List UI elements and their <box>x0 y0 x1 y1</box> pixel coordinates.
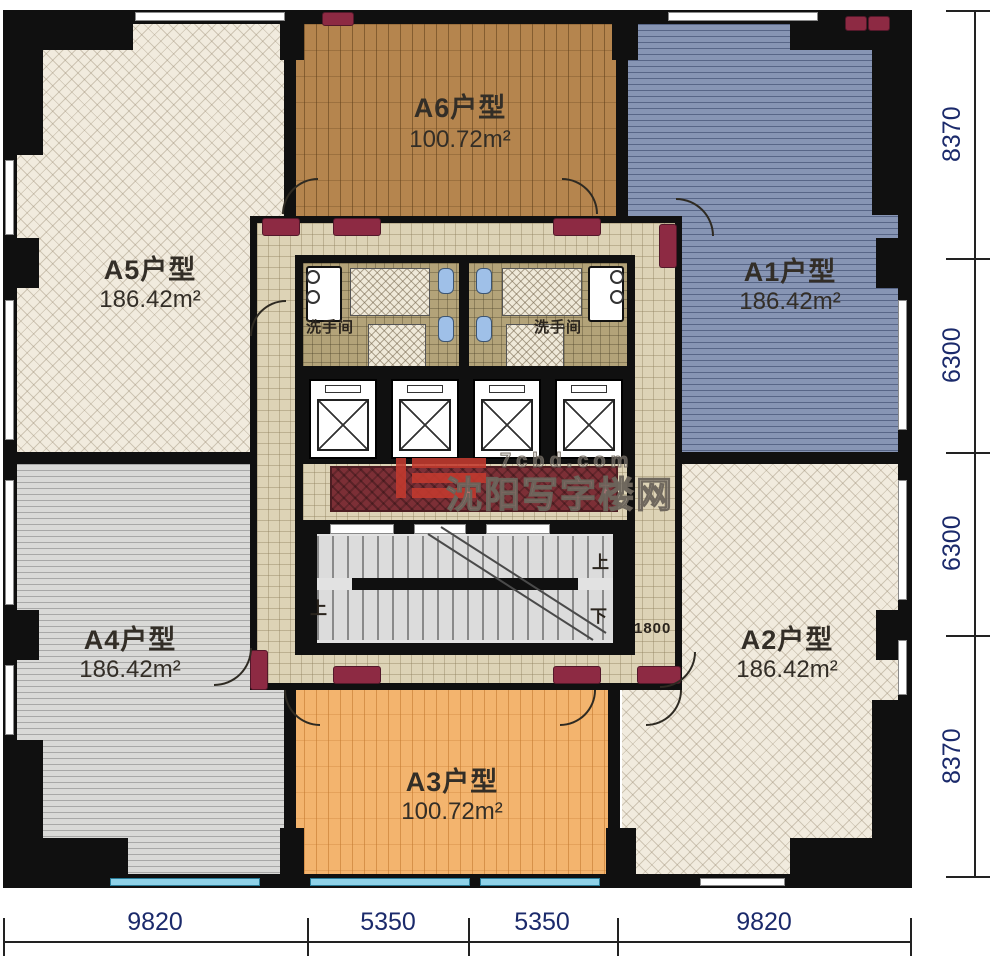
dim-right-1: 8370 <box>938 74 967 194</box>
toilet-icon <box>438 268 454 294</box>
stair-down-label: 下 <box>590 602 608 627</box>
dim-tick <box>910 918 912 956</box>
unit-a2-label: A2户型 <box>682 618 892 657</box>
sink-icon <box>306 290 320 304</box>
door-mat <box>659 224 677 268</box>
pier-top-right <box>612 10 638 60</box>
dim-line-bottom <box>3 941 912 943</box>
wall-vent-block <box>868 16 890 31</box>
unit-a1-area: 186.42m² <box>690 288 890 316</box>
core-cross-wall <box>303 366 627 374</box>
elevator-1 <box>309 379 377 459</box>
door-mat <box>553 218 601 236</box>
dim-right-4: 8370 <box>938 696 967 816</box>
unit-a1-label: A1户型 <box>690 250 890 289</box>
elevator-2 <box>391 379 459 459</box>
wall-a5-a4 <box>17 452 250 464</box>
column-bottom-left-v <box>3 740 43 888</box>
door-mat <box>553 666 601 684</box>
pier-bottom-left <box>280 828 304 888</box>
washroom-right-counter <box>502 268 582 316</box>
dim-tick <box>946 452 990 454</box>
elevator-3 <box>473 379 541 459</box>
toilet-icon <box>476 316 492 342</box>
dim-tick <box>946 258 990 260</box>
window-top-right <box>668 12 818 21</box>
floor-plan-canvas: 洗手间 洗手间 上 上 下 1800 A5户型 186.42m² A6 <box>0 0 1000 958</box>
elevator-door <box>489 385 525 393</box>
window-left-3 <box>5 480 14 605</box>
unit-a3-area: 100.72m² <box>322 798 582 826</box>
window-top-left <box>135 12 285 21</box>
elevator-shaft-icon <box>399 399 451 451</box>
dim-tick <box>946 10 990 12</box>
wall-a1-a2 <box>682 452 898 464</box>
unit-a2-area: 186.42m² <box>682 656 892 684</box>
pier-left-upper <box>3 238 39 288</box>
sink-icon <box>306 270 320 284</box>
washroom-right-label: 洗手间 <box>534 316 596 337</box>
window-right-2 <box>898 480 907 600</box>
window-bottom-right <box>700 878 785 886</box>
sink-icon <box>610 290 624 304</box>
elevator-shaft-icon <box>317 399 369 451</box>
dim-tick <box>946 635 990 637</box>
toilet-icon <box>476 268 492 294</box>
unit-a5-label: A5户型 <box>40 248 260 287</box>
window-left-1 <box>5 160 14 235</box>
elevator-shaft-icon <box>481 399 533 451</box>
dim-tick <box>946 876 990 878</box>
sink-icon <box>610 270 624 284</box>
watermark-site-name: 沈阳写字楼网 <box>446 466 674 518</box>
unit-a3-label: A3户型 <box>322 760 582 799</box>
curtain-wall-bottom-1 <box>110 878 260 886</box>
door-mat <box>333 218 381 236</box>
unit-a6-area: 100.72m² <box>330 126 590 154</box>
dim-bottom-3: 5350 <box>462 908 622 937</box>
elevator-door <box>571 385 607 393</box>
window-left-4 <box>5 665 14 735</box>
door-mat <box>250 650 268 690</box>
washroom-left-lower-stall <box>368 324 426 368</box>
window-right-1 <box>898 300 907 430</box>
unit-a6-label: A6户型 <box>330 86 590 125</box>
washroom-left-label: 洗手间 <box>306 316 368 337</box>
curtain-wall-bottom-3 <box>480 878 600 886</box>
door-mat <box>333 666 381 684</box>
stair-up-label-left: 上 <box>310 594 328 619</box>
dim-right-2: 6300 <box>938 295 967 415</box>
pier-bottom-right <box>606 828 636 888</box>
toilet-icon <box>438 316 454 342</box>
stair-break-line <box>303 520 627 647</box>
elevator-4 <box>555 379 623 459</box>
unit-a5-area: 186.42m² <box>40 286 260 314</box>
dim-bottom-4: 9820 <box>684 908 844 937</box>
door-mat <box>262 218 300 236</box>
stair-up-label-right: 上 <box>592 548 610 573</box>
wall-vent-block <box>322 12 354 26</box>
column-top-left-v <box>3 10 43 155</box>
column-top-right-v <box>872 10 912 215</box>
curtain-wall-bottom-2 <box>310 878 470 886</box>
elevator-shaft-icon <box>563 399 615 451</box>
dim-bottom-2: 5350 <box>308 908 468 937</box>
washroom-divider-wall <box>459 263 469 368</box>
column-bottom-right-v <box>872 700 912 888</box>
window-right-3 <box>898 640 907 695</box>
washroom-left-counter <box>350 268 430 316</box>
dim-tick <box>3 918 5 956</box>
dim-right-3: 6300 <box>938 483 967 603</box>
window-left-2 <box>5 300 14 440</box>
unit-a4-label: A4户型 <box>30 618 230 657</box>
dim-bottom-1: 9820 <box>75 908 235 937</box>
elevator-door <box>407 385 443 393</box>
unit-a4-area: 186.42m² <box>30 656 230 684</box>
wall-vent-block <box>845 16 867 31</box>
dim-line-right <box>974 10 976 878</box>
corridor-width-label: 1800 <box>634 620 671 637</box>
elevator-door <box>325 385 361 393</box>
